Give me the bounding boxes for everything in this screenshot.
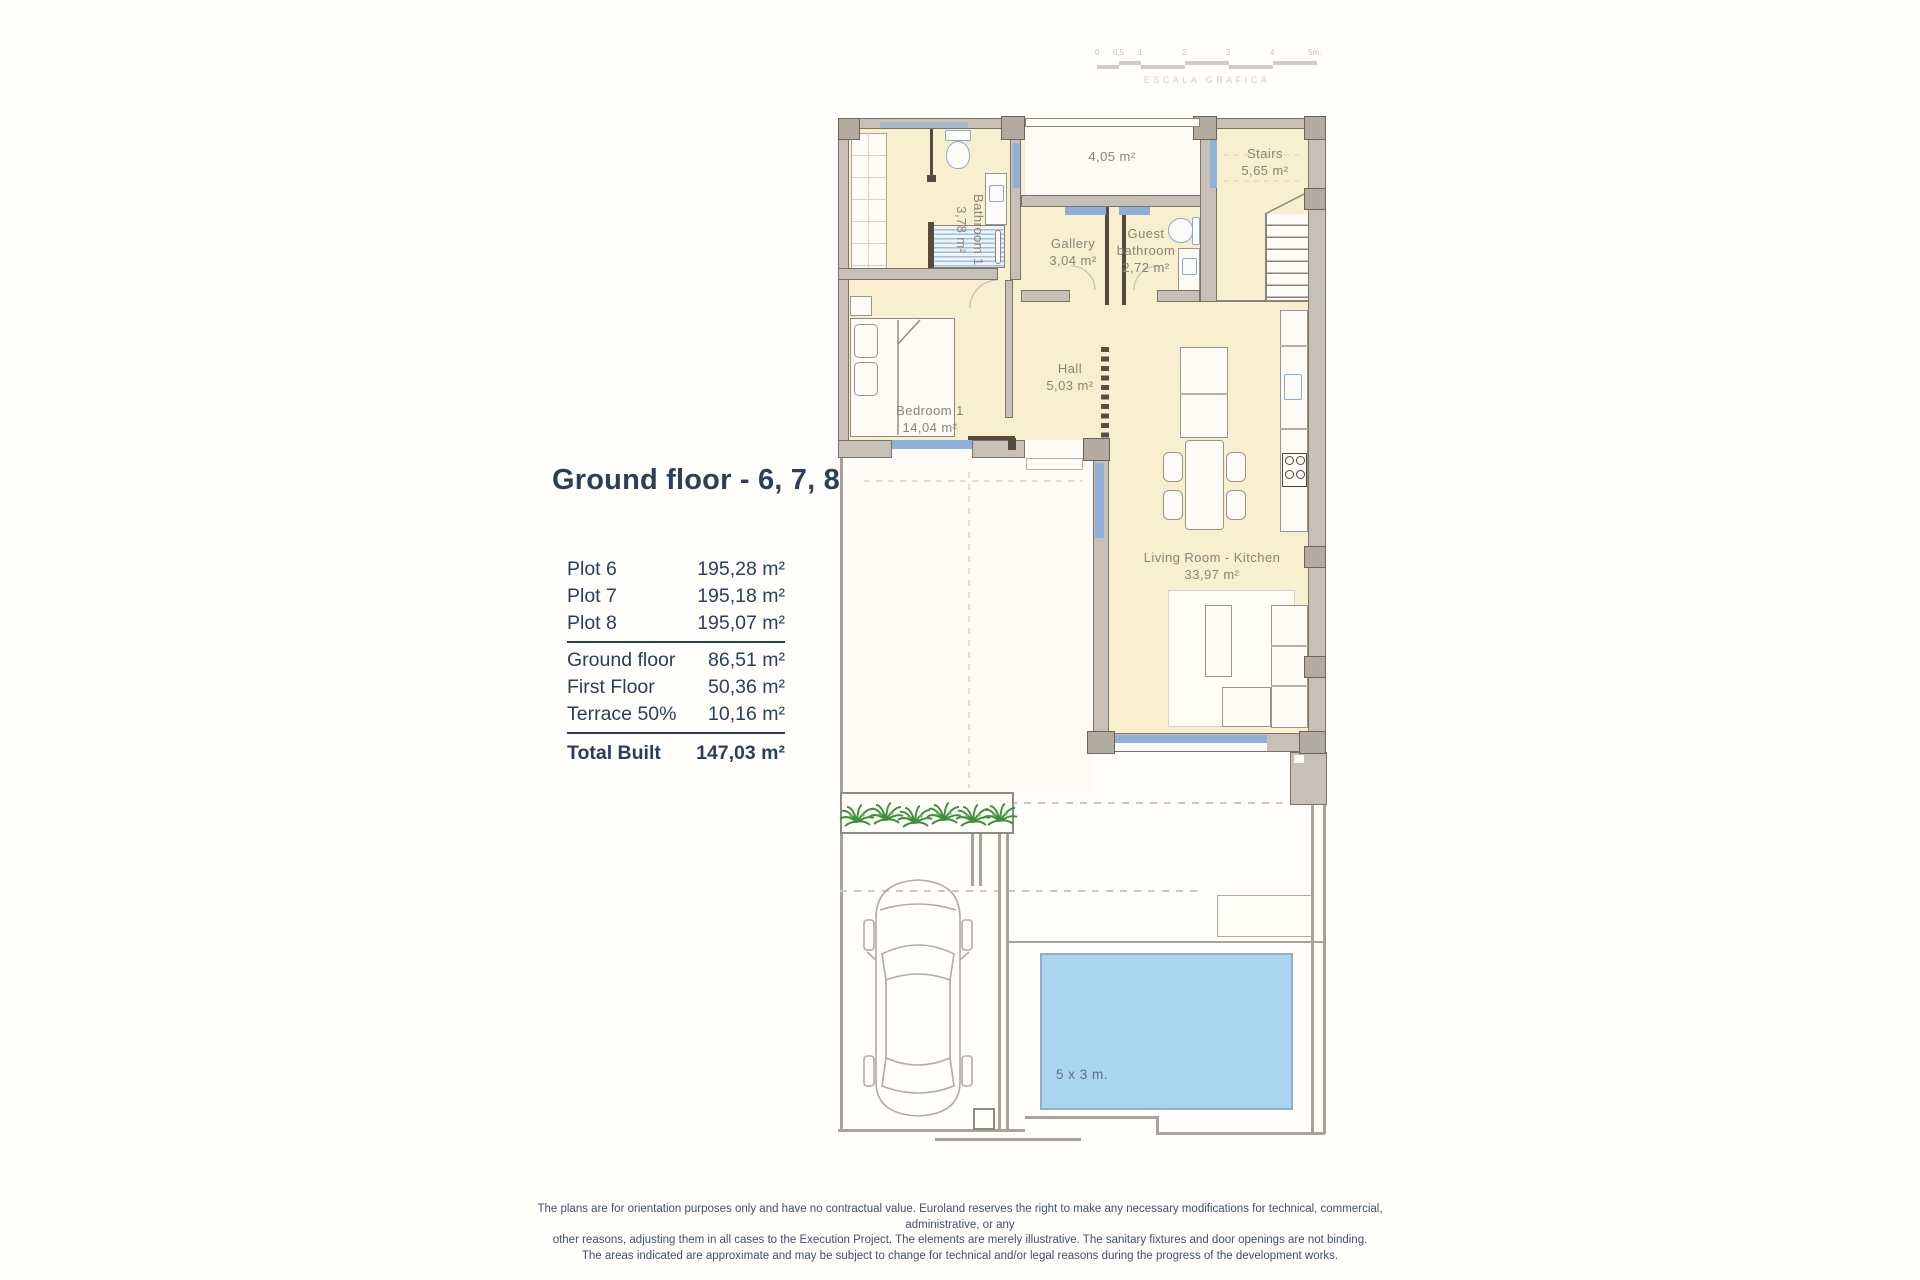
window xyxy=(880,122,968,128)
stairs-area: 5,65 m² xyxy=(1215,163,1315,180)
gate-line xyxy=(979,834,982,886)
table-row: Plot 6 195,28 m² xyxy=(567,556,785,583)
scale-tick: 2 xyxy=(1182,48,1186,57)
plot-boundary xyxy=(935,1138,1081,1141)
gallery-area: 3,04 m² xyxy=(1023,253,1123,270)
plot-value: 195,07 m² xyxy=(697,612,785,635)
room-stairs-label: Stairs 5,65 m² xyxy=(1215,146,1315,180)
total-label: Total Built xyxy=(567,742,661,765)
scale-tick: 3 xyxy=(1226,48,1230,57)
table-row: Plot 8 195,07 m² xyxy=(567,610,785,637)
shower-screen xyxy=(928,222,934,268)
living-name: Living Room - Kitchen xyxy=(1132,550,1292,567)
stair-diagonal xyxy=(1217,188,1308,218)
stair-edge xyxy=(1265,214,1267,300)
table-row: Ground floor 86,51 m² xyxy=(567,647,785,674)
plot-label: Plot 7 xyxy=(567,585,617,608)
pillar xyxy=(1299,731,1326,754)
chair xyxy=(1163,490,1183,520)
partition-wall xyxy=(1005,280,1013,418)
area-value: 10,16 m² xyxy=(708,703,785,726)
plot-boundary xyxy=(1025,1116,1158,1119)
burner xyxy=(1296,470,1305,479)
door-step xyxy=(1026,458,1083,470)
guest-bathroom-name: Guest bathroom xyxy=(1110,226,1182,260)
plot-boundary xyxy=(838,1129,1025,1132)
room-terrace-label: 4,05 m² xyxy=(1052,149,1172,166)
window xyxy=(1065,207,1106,215)
table-row: Plot 7 195,18 m² xyxy=(567,583,785,610)
table-divider xyxy=(567,732,785,734)
scale-tick: 5m. xyxy=(1308,48,1321,57)
area-label: First Floor xyxy=(567,676,655,699)
garden-planter xyxy=(1217,895,1312,937)
pillar xyxy=(1001,116,1025,140)
wall xyxy=(838,440,892,458)
area-label: Ground floor xyxy=(567,649,675,672)
pillar xyxy=(1304,656,1326,678)
sink xyxy=(989,185,1004,202)
plot-value: 195,18 m² xyxy=(697,585,785,608)
carport-line xyxy=(1006,834,1009,1130)
toilet-tank xyxy=(945,130,971,141)
area-table: Plot 6 195,28 m² Plot 7 195,18 m² Plot 8… xyxy=(567,556,785,768)
door-opening xyxy=(1025,440,1083,458)
plants-icon xyxy=(840,792,1014,834)
scale-tick: 4 xyxy=(1270,48,1274,57)
table-divider xyxy=(567,641,785,643)
sofa-cushion-line xyxy=(1271,645,1308,647)
wardrobe xyxy=(851,133,887,269)
front-terrace-floor xyxy=(849,458,1093,792)
table-total-row: Total Built 147,03 m² xyxy=(567,738,785,768)
room-living-label: Living Room - Kitchen 33,97 m² xyxy=(1132,550,1292,584)
burner xyxy=(1285,456,1294,465)
window xyxy=(1095,463,1104,538)
stairs-name: Stairs xyxy=(1215,146,1315,163)
wall xyxy=(838,118,849,458)
wardrobe-divider xyxy=(868,133,869,269)
page-title: Ground floor - 6, 7, 8 xyxy=(552,464,840,497)
plot-label: Plot 8 xyxy=(567,612,617,635)
disclaimer-line: The plans are for orientation purposes o… xyxy=(510,1202,1410,1233)
disclaimer: The plans are for orientation purposes o… xyxy=(510,1202,1410,1264)
utility-box xyxy=(973,1108,995,1130)
guide-dash xyxy=(968,472,970,788)
deck-line xyxy=(1008,941,1325,943)
plot-boundary xyxy=(1156,1132,1325,1135)
coffee-table xyxy=(1205,605,1232,677)
scale-tick: 1 xyxy=(1138,48,1142,57)
kitchen-sink xyxy=(1284,374,1302,400)
chair xyxy=(1163,452,1183,482)
terrace-area: 4,05 m² xyxy=(1052,149,1172,166)
island-divider xyxy=(1180,393,1228,395)
window xyxy=(1119,207,1150,215)
guest-bathroom-area: 2,72 m² xyxy=(1110,260,1182,277)
bathroom1-name: Bathroom 1 xyxy=(969,155,986,305)
door-hinge xyxy=(1008,438,1016,450)
scale-segment xyxy=(1119,61,1141,65)
hall-name: Hall xyxy=(1020,361,1120,378)
dining-table xyxy=(1185,440,1224,530)
wall xyxy=(1157,290,1200,302)
scale-segment xyxy=(1185,61,1229,65)
room-bathroom1-label: Bathroom 1 3,78 m² xyxy=(952,155,986,305)
bathroom1-area: 3,78 m² xyxy=(952,155,969,305)
shower-door xyxy=(995,230,1001,264)
scale-segment xyxy=(1141,65,1185,69)
total-value: 147,03 m² xyxy=(696,742,785,765)
counter-divider xyxy=(1280,428,1308,430)
chair xyxy=(1226,490,1246,520)
bedroom1-area: 14,04 m² xyxy=(875,420,985,437)
scale-bar: 0 0,5 1 2 3 4 5m. ESCALA GRAFICA xyxy=(1097,48,1317,96)
scale-segment xyxy=(1229,65,1273,69)
sofa-cushion-line xyxy=(1271,685,1308,687)
room-guest-bathroom-label: Guest bathroom 2,72 m² xyxy=(1110,226,1182,277)
pillar xyxy=(1083,438,1110,461)
area-label: Terrace 50% xyxy=(567,703,676,726)
burner xyxy=(1285,470,1294,479)
toilet-tank xyxy=(1192,217,1200,245)
plot-boundary xyxy=(1311,805,1314,1134)
pillar xyxy=(838,118,860,140)
area-value: 50,36 m² xyxy=(708,676,785,699)
plot-boundary xyxy=(1323,805,1326,1134)
guide-dash xyxy=(864,480,1082,482)
scale-caption: ESCALA GRAFICA xyxy=(1097,75,1317,85)
hall-area: 5,03 m² xyxy=(1020,378,1120,395)
terrace-parapet xyxy=(1025,118,1200,127)
carport-line xyxy=(998,834,1001,1130)
stair-landing-line xyxy=(1217,300,1308,302)
wall xyxy=(1021,195,1217,207)
chair xyxy=(1226,452,1246,482)
room-gallery-label: Gallery 3,04 m² xyxy=(1023,236,1123,270)
table-row: Terrace 50% 10,16 m² xyxy=(567,701,785,728)
pillar xyxy=(1304,546,1326,568)
scale-segment xyxy=(1273,61,1317,65)
guide-dash xyxy=(1224,180,1300,182)
garden-wall-notch xyxy=(1294,755,1304,763)
kitchen-counter xyxy=(1280,310,1308,532)
wall xyxy=(972,440,1025,458)
scale-tick: 0,5 xyxy=(1113,48,1124,57)
window-sill xyxy=(892,449,972,458)
wall xyxy=(1021,290,1070,302)
scale-segment xyxy=(1097,65,1119,69)
living-area: 33,97 m² xyxy=(1132,567,1292,584)
partition-screen xyxy=(930,129,933,177)
window xyxy=(1013,143,1020,188)
disclaimer-line: other reasons, adjusting them in all cas… xyxy=(510,1233,1410,1249)
sink xyxy=(1182,258,1197,275)
pool: 5 x 3 m. xyxy=(1040,953,1293,1110)
boundary-dash xyxy=(1010,802,1325,804)
room-hall-label: Hall 5,03 m² xyxy=(1020,361,1120,395)
pillar xyxy=(1087,731,1115,754)
disclaimer-line: The areas indicated are approximate and … xyxy=(510,1249,1410,1265)
scale-tick: 0 xyxy=(1095,48,1099,57)
pool-label: 5 x 3 m. xyxy=(1056,1067,1108,1082)
room-bedroom1-label: Bedroom 1 14,04 m² xyxy=(875,403,985,437)
floor-plan: 5 x 3 m. 4,05 m² Stairs 5,65 m² Bathroom… xyxy=(838,118,1332,1163)
window xyxy=(892,440,972,449)
plot-label: Plot 6 xyxy=(567,558,617,581)
gallery-name: Gallery xyxy=(1023,236,1123,253)
area-value: 86,51 m² xyxy=(708,649,785,672)
sofa-chaise xyxy=(1222,687,1271,727)
partition-cap xyxy=(927,175,936,182)
pillar xyxy=(1304,116,1326,140)
stair-treads xyxy=(1265,214,1308,300)
table-row: First Floor 50,36 m² xyxy=(567,674,785,701)
car-icon xyxy=(860,874,976,1120)
counter-divider xyxy=(1280,345,1308,347)
nightstand xyxy=(850,296,872,316)
bedroom1-name: Bedroom 1 xyxy=(875,403,985,420)
pillar xyxy=(1304,188,1326,210)
sofa xyxy=(1271,605,1308,728)
page: 0 0,5 1 2 3 4 5m. ESCALA GRAFICA Ground … xyxy=(0,0,1920,1280)
plot-value: 195,28 m² xyxy=(697,558,785,581)
window xyxy=(1115,735,1267,743)
burner xyxy=(1296,456,1305,465)
window-sill xyxy=(1115,743,1267,751)
